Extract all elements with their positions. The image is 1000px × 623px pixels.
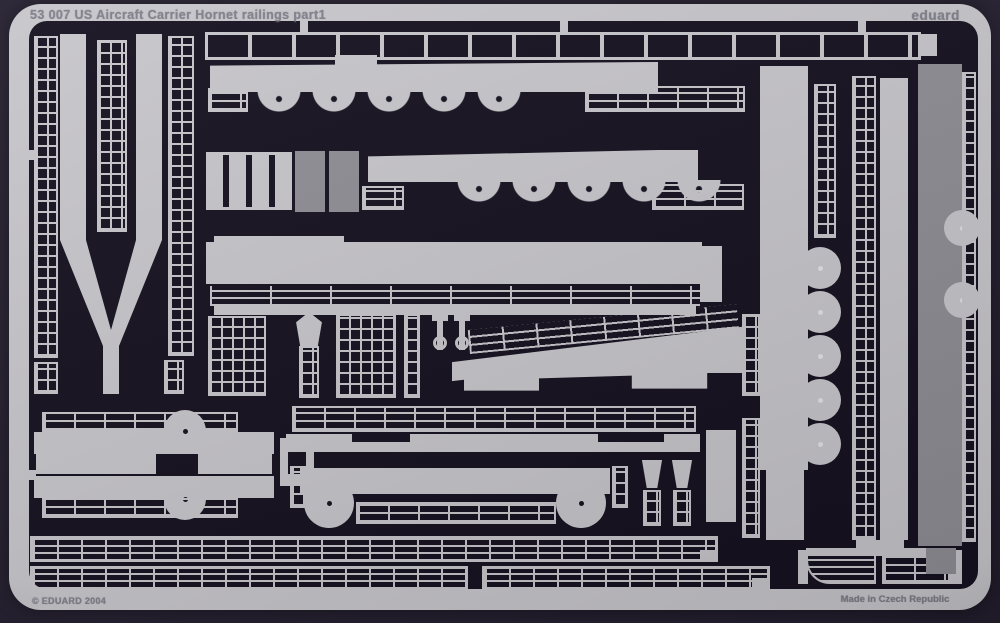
railing-segment — [362, 186, 404, 210]
railing-segment — [208, 88, 248, 112]
ladder-strip — [404, 314, 420, 398]
strip-notch — [598, 434, 664, 442]
side-plate-lobe — [799, 247, 841, 289]
walkway-railing — [356, 502, 556, 524]
side-plate-lobe — [799, 335, 841, 377]
davit-ladder — [299, 346, 319, 398]
chock-top-part — [640, 460, 664, 488]
side-plate-lobe — [799, 379, 841, 421]
hook-pulley-part — [432, 312, 448, 350]
small-ladder-piece — [164, 360, 184, 394]
platform-top-tab — [335, 55, 377, 65]
ladder-group — [208, 316, 266, 396]
railing-end-tab — [700, 550, 718, 562]
four-plate-strip — [206, 152, 292, 210]
vertical-railing-strip — [852, 76, 876, 540]
small-ladder-piece — [34, 362, 58, 394]
boat-railing-curved — [806, 554, 876, 584]
walkway-railing — [42, 412, 238, 432]
sheet-title-engraving: 53 007 US Aircraft Carrier Hornet railin… — [30, 8, 326, 22]
strip-notch — [352, 434, 410, 442]
chock-ladder — [673, 490, 691, 526]
walkway-railing — [42, 498, 238, 518]
walkway-end-grid — [612, 466, 628, 508]
railing-segment — [585, 86, 745, 112]
bottom-railing-row — [30, 536, 718, 562]
platform-a-lobes — [252, 90, 528, 118]
ladder-group — [336, 314, 396, 398]
gray-plate-foot — [926, 548, 956, 574]
inner-ladder-strip — [97, 40, 127, 232]
vertical-railing-strip — [34, 36, 58, 358]
ladder-strip — [742, 314, 760, 396]
walkway-link — [36, 454, 156, 474]
tall-plain-strip — [880, 78, 908, 540]
walkway-corner-lobe — [304, 478, 354, 528]
chock-ladder — [643, 490, 661, 526]
railing-end-tab — [921, 34, 937, 56]
walkway-plate — [34, 476, 274, 498]
tall-plate-part — [706, 430, 736, 522]
copyright-engraving: © EDUARD 2004 — [32, 596, 106, 606]
strip-foot — [856, 540, 904, 556]
long-railing — [292, 406, 696, 432]
side-plate-lobe — [799, 423, 841, 465]
deck-edge-strip — [206, 242, 702, 284]
bottom-railing-row — [482, 566, 770, 590]
origin-engraving: Made in Czech Republic — [830, 594, 960, 605]
walkway-link — [198, 454, 272, 474]
mesh-grille — [295, 151, 325, 212]
walkway-end-grid — [290, 466, 306, 508]
davit-head-part — [292, 312, 326, 346]
etched-parts-layer — [0, 0, 1000, 623]
railing-segment — [652, 184, 744, 210]
railing-end-tab — [752, 578, 768, 588]
bottom-railing-row — [30, 566, 468, 590]
tall-side-plate-lower — [766, 470, 804, 540]
top-long-railing — [205, 32, 921, 60]
scalloped-platform-b — [368, 150, 698, 182]
deck-railing-wires — [210, 286, 700, 306]
chock-top-part — [670, 460, 694, 488]
walkway-corner-lobe — [556, 478, 606, 528]
edge-ladder-strip — [962, 72, 976, 542]
walkway-plate — [34, 432, 274, 454]
side-ladder — [814, 84, 836, 238]
mesh-grille — [329, 151, 359, 212]
ladder-strip — [742, 418, 760, 538]
side-plate-lobe — [799, 291, 841, 333]
product-photo: 53 007 US Aircraft Carrier Hornet railin… — [0, 0, 1000, 623]
walkway-lobe — [164, 410, 206, 452]
deck-step-piece — [700, 246, 722, 302]
brand-logo-engraving: eduard — [860, 8, 960, 23]
vertical-railing-strip — [168, 36, 194, 356]
